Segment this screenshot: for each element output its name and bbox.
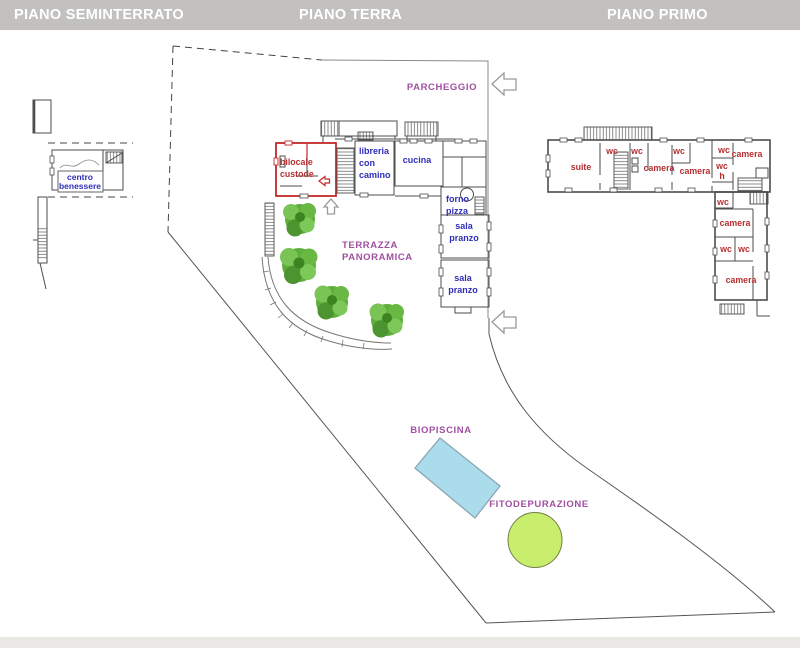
header-title-seminterrato: PIANO SEMINTERRATO bbox=[14, 7, 184, 23]
label-parcheggio: PARCHEGGIO bbox=[407, 82, 477, 93]
south-wing-annex bbox=[757, 300, 770, 316]
primo-stairs-east bbox=[738, 178, 762, 191]
sala-pranzo-2-room bbox=[441, 260, 489, 307]
label-camera: camera bbox=[720, 218, 751, 228]
label-sala1-b: pranzo bbox=[449, 233, 479, 243]
floor-title-bar: PIANO SEMINTERRATO PIANO TERRA PIANO PRI… bbox=[0, 0, 800, 30]
floorplan-page: PIANO SEMINTERRATO PIANO TERRA PIANO PRI… bbox=[0, 0, 800, 648]
label-terrazza: TERRAZZA bbox=[342, 240, 398, 251]
label-wc: wc bbox=[605, 146, 618, 156]
header-title-terra: PIANO TERRA bbox=[299, 7, 402, 23]
wc-fixture bbox=[632, 166, 638, 172]
site-boundary bbox=[168, 46, 775, 623]
left-arrow-icon bbox=[492, 311, 516, 333]
label-custode: custode bbox=[280, 169, 314, 179]
label-camera: camera bbox=[644, 163, 675, 173]
label-pizza: pizza bbox=[446, 206, 469, 216]
plan-piano-primo: suite wc wc wc camera camera wc camera w… bbox=[546, 127, 770, 316]
window-tick bbox=[50, 168, 54, 175]
stair-shaft-steps bbox=[38, 227, 47, 260]
label-wc: wc bbox=[716, 197, 729, 207]
entry-arrow-red-icon bbox=[319, 177, 330, 186]
building-top-wall bbox=[323, 136, 455, 143]
boundary-top-dashed bbox=[173, 46, 322, 60]
label-cucina: cucina bbox=[403, 155, 433, 165]
roof-stairs-hatch bbox=[321, 121, 339, 136]
label-wc: wc bbox=[630, 146, 643, 156]
seminterrato-annex bbox=[33, 100, 51, 133]
label-libreria-3: camino bbox=[359, 170, 391, 180]
label-fitodepurazione: FITODEPURAZIONE bbox=[489, 499, 589, 510]
label-wc: wc bbox=[719, 244, 732, 254]
roof-stairs-2 bbox=[405, 122, 438, 136]
label-libreria-2: con bbox=[359, 158, 375, 168]
label-sala2-b: pranzo bbox=[448, 285, 478, 295]
east-rooms-inner bbox=[443, 157, 486, 187]
left-arrow-icon bbox=[492, 73, 516, 95]
tree bbox=[283, 203, 316, 237]
red-window-tick bbox=[274, 158, 278, 165]
boundary-bottom bbox=[486, 612, 775, 623]
boundary-right-curve bbox=[489, 318, 775, 612]
up-arrow-icon bbox=[324, 199, 338, 214]
terrace-step-ticks bbox=[263, 271, 364, 349]
label-wc-h-2: h bbox=[719, 171, 724, 181]
red-window-tick bbox=[285, 141, 292, 145]
primo-stairwell bbox=[614, 152, 628, 189]
biopiscina-pool-shape bbox=[415, 438, 500, 518]
label-wc: wc bbox=[717, 145, 730, 155]
label-sala2-a: sala bbox=[454, 273, 473, 283]
primo-ext-stairs bbox=[750, 192, 768, 204]
stairwell-terra bbox=[337, 148, 354, 193]
label-wc-h-1: wc bbox=[715, 161, 728, 171]
label-benessere: benessere bbox=[59, 181, 101, 191]
south-wing-stairs bbox=[720, 304, 744, 314]
east-rooms bbox=[443, 141, 486, 187]
tree bbox=[315, 286, 350, 320]
label-bilocale: bilocale bbox=[280, 157, 313, 167]
primo-landing bbox=[756, 168, 768, 178]
header-title-primo: PIANO PRIMO bbox=[607, 7, 708, 23]
label-panoramica: PANORAMICA bbox=[342, 252, 413, 263]
label-wc: wc bbox=[672, 146, 685, 156]
footer-strip bbox=[0, 637, 800, 648]
primo-roof-stairs bbox=[584, 127, 652, 140]
label-camera: camera bbox=[680, 166, 711, 176]
floor-plan-svg: centro benessere bbox=[0, 0, 800, 648]
sala-pranzo-step bbox=[455, 307, 471, 313]
tree bbox=[280, 248, 318, 284]
label-suite: suite bbox=[571, 162, 592, 172]
plan-seminterrato: centro benessere bbox=[33, 100, 133, 289]
fitodepurazione-pond-shape bbox=[508, 513, 562, 568]
label-camera: camera bbox=[726, 275, 757, 285]
label-camera: camera bbox=[732, 149, 763, 159]
window-tick bbox=[50, 156, 54, 163]
boundary-left-dashed bbox=[168, 46, 173, 232]
tree bbox=[370, 304, 405, 338]
label-biopiscina: BIOPISCINA bbox=[410, 425, 471, 436]
forno-stairs bbox=[475, 197, 484, 214]
label-libreria-1: libreria bbox=[359, 146, 390, 156]
wc-fixture bbox=[632, 158, 638, 164]
terrace-side-steps bbox=[265, 203, 274, 256]
label-sala1-a: sala bbox=[455, 221, 474, 231]
spa-curve-wall bbox=[60, 160, 99, 168]
label-forno: forno bbox=[446, 194, 469, 204]
label-wc: wc bbox=[737, 244, 750, 254]
